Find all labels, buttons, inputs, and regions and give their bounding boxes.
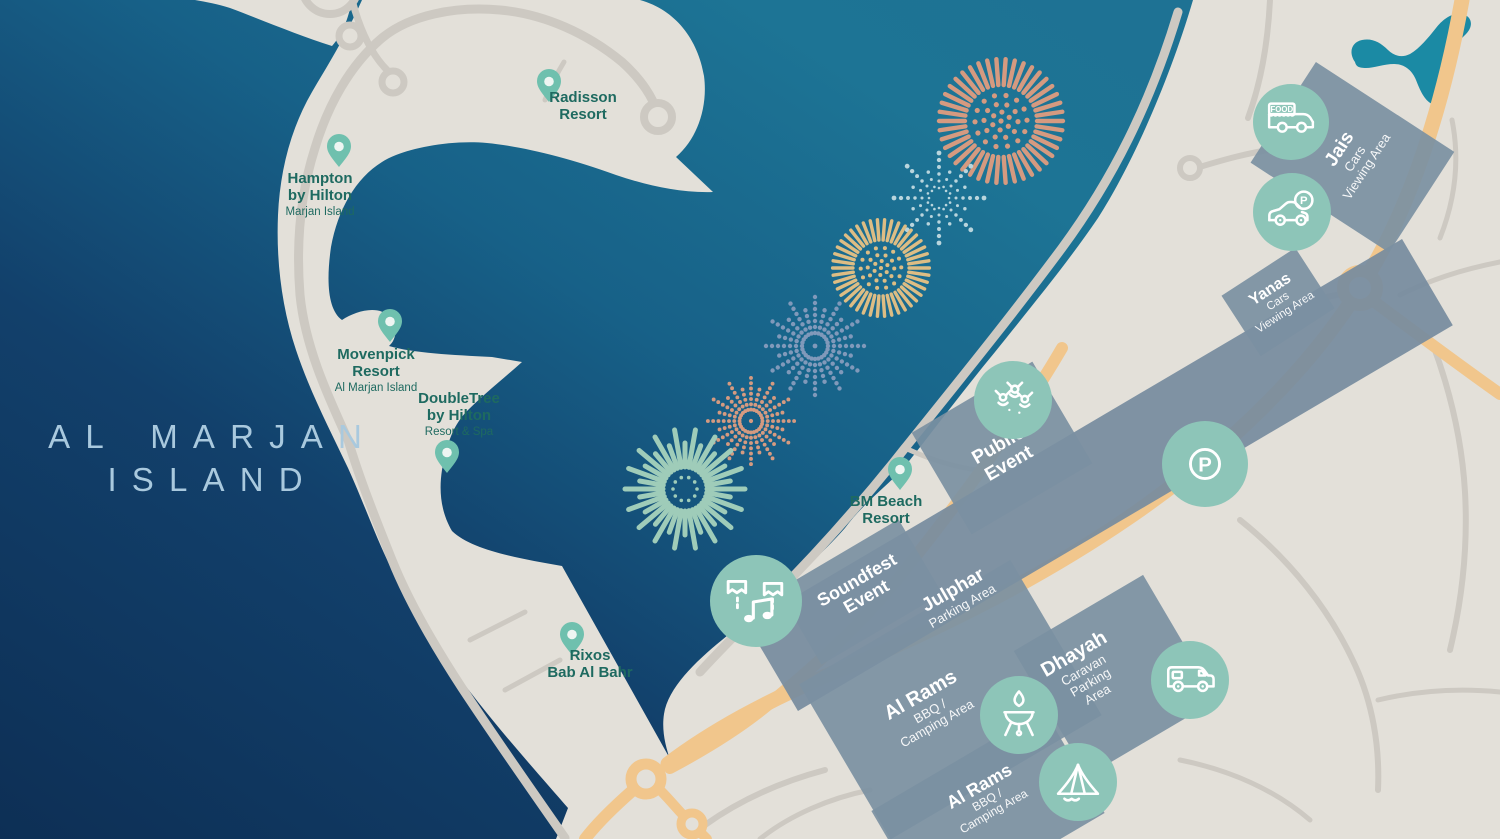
music-stage-icon: [723, 568, 789, 634]
radisson-label: Radisson Resort: [549, 90, 617, 124]
roundabout-south: [681, 813, 703, 835]
public-event-badge: [974, 361, 1052, 439]
camping-badge: [1039, 743, 1117, 821]
rixos-label: Rixos Bab Al Bahr: [547, 648, 632, 682]
soundfest-badge: [710, 555, 802, 647]
bm-beach-label: BM Beach Resort: [850, 494, 923, 528]
parking-icon: P: [1174, 433, 1236, 495]
movenpick-label: Movenpick Resort Al Marjan Island: [335, 347, 417, 394]
map-title-line2: ISLAND: [30, 459, 395, 502]
food-truck-badge: FOOD: [1253, 84, 1329, 160]
food-truck-icon: FOOD: [1263, 94, 1319, 150]
map-title: AL MARJAN ISLAND: [30, 416, 380, 502]
caravan-badge: [1151, 641, 1229, 719]
bbq-badge: [980, 676, 1058, 754]
bbq-grill-icon: [990, 686, 1048, 744]
food-sign-text: FOOD: [1270, 105, 1293, 114]
car-parking-icon: P: [1263, 183, 1321, 241]
parking-letter: P: [1198, 454, 1212, 476]
hampton-label: Hampton by Hilton Marjan Island: [285, 171, 354, 218]
cars-parking-badge: P: [1253, 173, 1331, 251]
roundabout-causeway: [631, 764, 661, 794]
map-title-line1: AL MARJAN: [30, 416, 395, 459]
tent-icon: [1049, 753, 1107, 811]
car-parking-letter: P: [1300, 195, 1308, 207]
parking-badge: P: [1162, 421, 1248, 507]
caravan-icon: [1161, 651, 1219, 709]
people-icon: [984, 371, 1042, 429]
al-marjan-event-map: AL MARJAN ISLAND Radisson Resort Hampton…: [0, 0, 1500, 839]
doubletree-label: DoubleTree by Hilton Resort & Spa: [418, 391, 500, 438]
